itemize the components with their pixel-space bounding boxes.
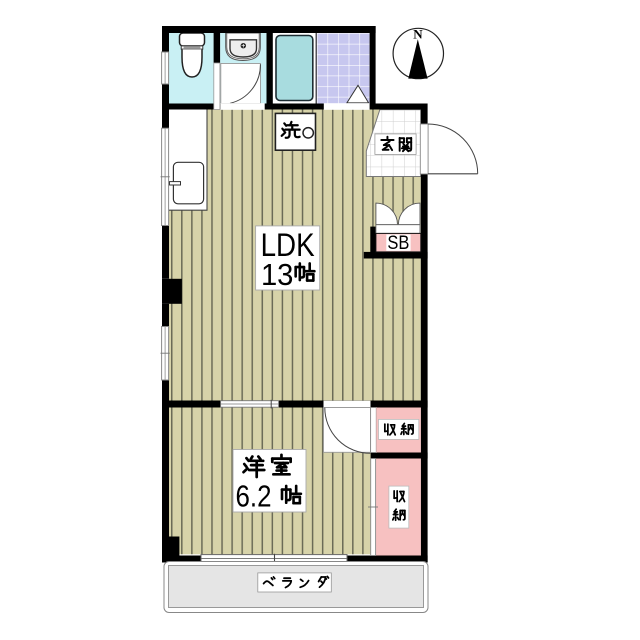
svg-text:N: N: [413, 27, 423, 42]
svg-text:6.2: 6.2: [236, 478, 272, 513]
svg-text:SB: SB: [387, 233, 409, 254]
svg-text:13: 13: [261, 257, 294, 292]
